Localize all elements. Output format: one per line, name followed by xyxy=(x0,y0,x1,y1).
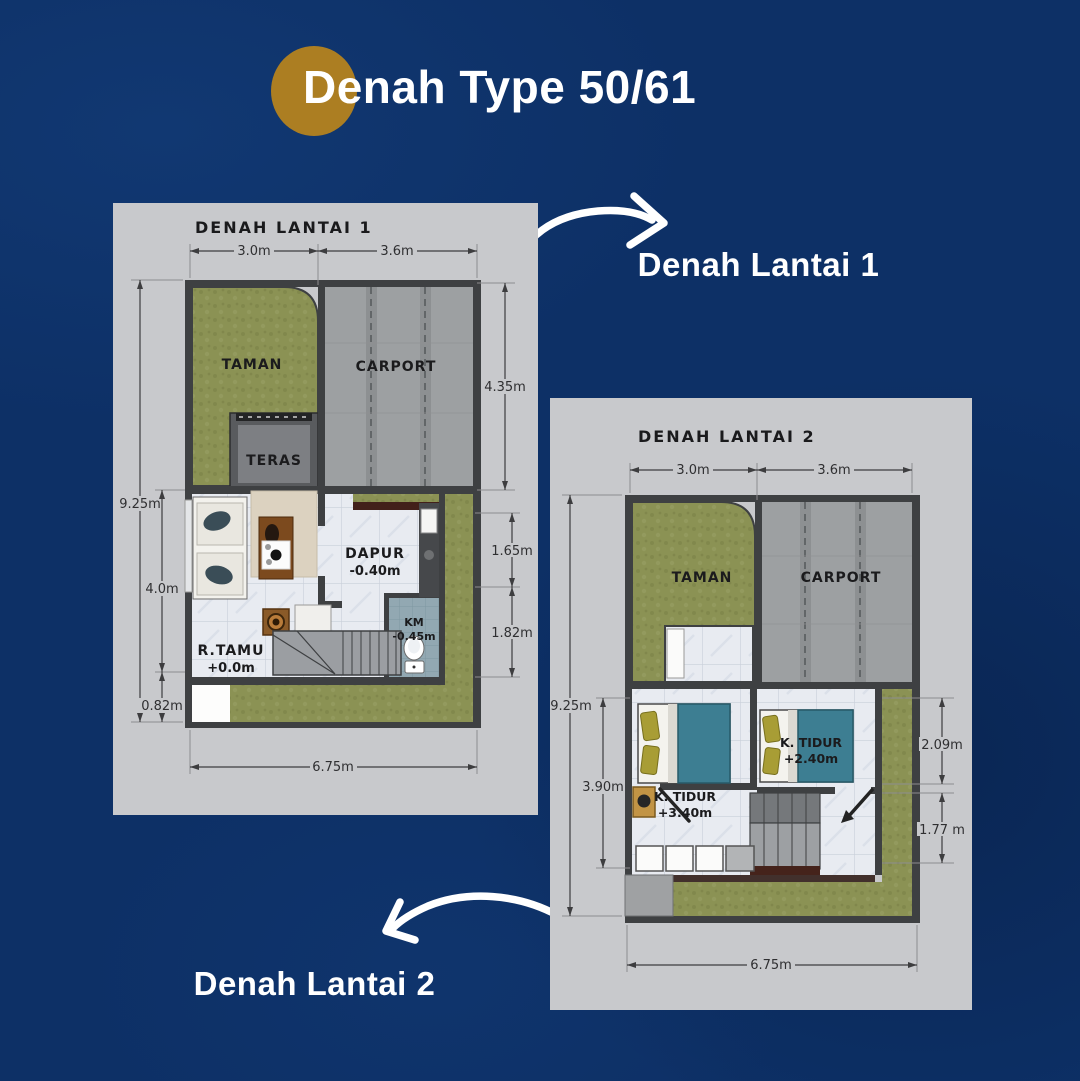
floor1-dapur-label: DAPUR xyxy=(345,546,405,562)
floor1-teras xyxy=(230,413,318,490)
arrow-to-floor2-icon xyxy=(386,896,557,940)
floor1-dim-left-living: 4.0m xyxy=(145,582,178,597)
floor2-concrete-slab xyxy=(625,875,673,916)
floor1-dim-top-left: 3.0m xyxy=(237,244,270,259)
floor1-dim-right-mid: 1.65m xyxy=(491,544,533,559)
floor2-dim-top-left: 3.0m xyxy=(676,463,709,478)
floor2-callout-label: Denah Lantai 2 xyxy=(162,965,467,1003)
floor1-sofa xyxy=(193,497,247,599)
floor2-side-table xyxy=(633,787,655,817)
page-title: Denah Type 50/61 xyxy=(303,60,823,114)
floor2-dim-left-bedroom: 3.90m xyxy=(582,780,624,795)
floor1-rtamu-level: +0.0m xyxy=(207,661,254,676)
floor2-carport-label: CARPORT xyxy=(801,570,882,586)
floor1-km-level: -0.45m xyxy=(392,630,435,643)
floor1-dim-bottom-total: 6.75m xyxy=(312,760,354,775)
floor2-carport-area xyxy=(762,502,912,682)
floor1-corner-slab xyxy=(192,685,230,722)
floor2-back-garden xyxy=(673,882,912,916)
floor2-title: DENAH LANTAI 2 xyxy=(638,427,816,446)
floor2-bedroom1-level: +3.40m xyxy=(658,805,712,820)
floor1-callout-label: Denah Lantai 1 xyxy=(606,246,911,284)
poster: Denah Type 50/61 Denah Lantai 1 Denah La… xyxy=(0,0,1080,1081)
floor1-dim-right-lower: 1.82m xyxy=(491,626,533,641)
floor1-km-label: KM xyxy=(404,616,423,629)
floor2-side-garden xyxy=(882,689,912,916)
floor1-window xyxy=(185,500,192,592)
floor2-bedroom1-label: K. TIDUR xyxy=(654,789,716,804)
floor1-kitchen-counter xyxy=(419,503,439,597)
floor2-dim-right-upper: 2.09m xyxy=(921,738,963,753)
floor1-carport-area xyxy=(325,287,473,486)
floor2-dim-bottom-total: 6.75m xyxy=(750,958,792,973)
floor2-plan-panel: DENAH LANTAI 2 xyxy=(550,398,972,1010)
floor1-dim-left-bottom: 0.82m xyxy=(141,699,183,714)
floor2-dim-top-right: 3.6m xyxy=(817,463,850,478)
floor1-title: DENAH LANTAI 1 xyxy=(195,218,373,237)
floor1-stairs xyxy=(273,631,401,675)
floor1-carport-label: CARPORT xyxy=(356,359,437,375)
floor2-dim-right-lower: 1.77 m xyxy=(919,823,965,838)
floor1-taman-label: TAMAN xyxy=(222,357,283,373)
floor1-dapur-level: -0.40m xyxy=(349,564,400,579)
floor1-dim-right-carport: 4.35m xyxy=(484,380,526,395)
floor2-bedroom2-level: +2.40m xyxy=(784,751,838,766)
floor1-rug-and-table xyxy=(251,491,317,579)
floor1-dim-left-total: 9.25m xyxy=(119,497,161,512)
floor1-teras-label: TERAS xyxy=(246,453,302,469)
floor2-balcony xyxy=(665,626,753,682)
floor1-plan-panel: DENAH LANTAI 1 xyxy=(113,203,538,815)
floor2-bed-left xyxy=(638,704,730,783)
floor1-back-garden xyxy=(230,685,473,722)
floor2-stairs xyxy=(750,793,820,875)
floor2-dim-left-total: 9.25m xyxy=(550,699,592,714)
floor1-rtamu-label: R.TAMU xyxy=(198,643,265,659)
floor2-bedroom2-label: K. TIDUR xyxy=(780,735,842,750)
floor1-dim-top-right: 3.6m xyxy=(380,244,413,259)
floor2-taman-label: TAMAN xyxy=(672,570,733,586)
